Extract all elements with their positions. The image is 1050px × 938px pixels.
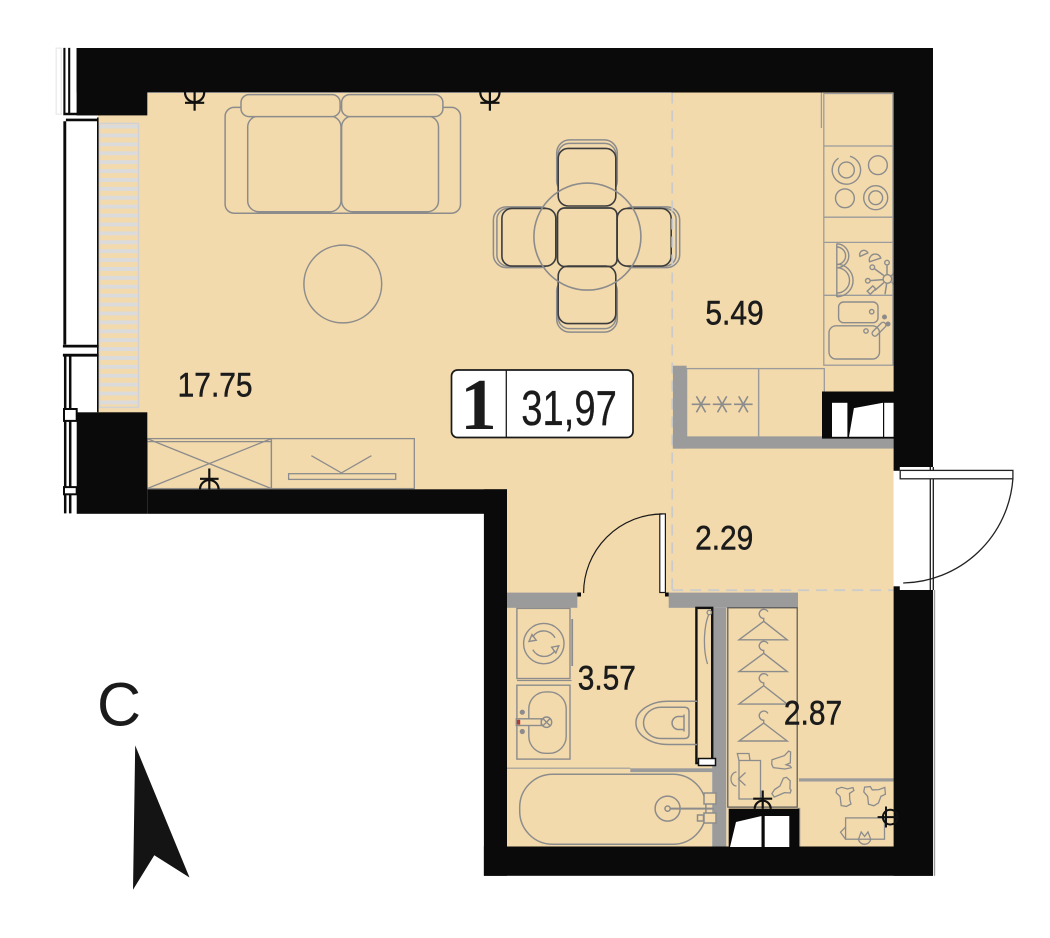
svg-text:3.57: 3.57	[578, 659, 636, 697]
svg-text:2.29: 2.29	[695, 519, 753, 557]
svg-text:C: C	[97, 671, 141, 739]
svg-text:2.87: 2.87	[784, 694, 842, 732]
svg-text:1: 1	[460, 364, 497, 445]
svg-text:5.49: 5.49	[705, 294, 763, 332]
svg-text:31,97: 31,97	[521, 382, 617, 437]
svg-text:17.75: 17.75	[178, 366, 253, 404]
